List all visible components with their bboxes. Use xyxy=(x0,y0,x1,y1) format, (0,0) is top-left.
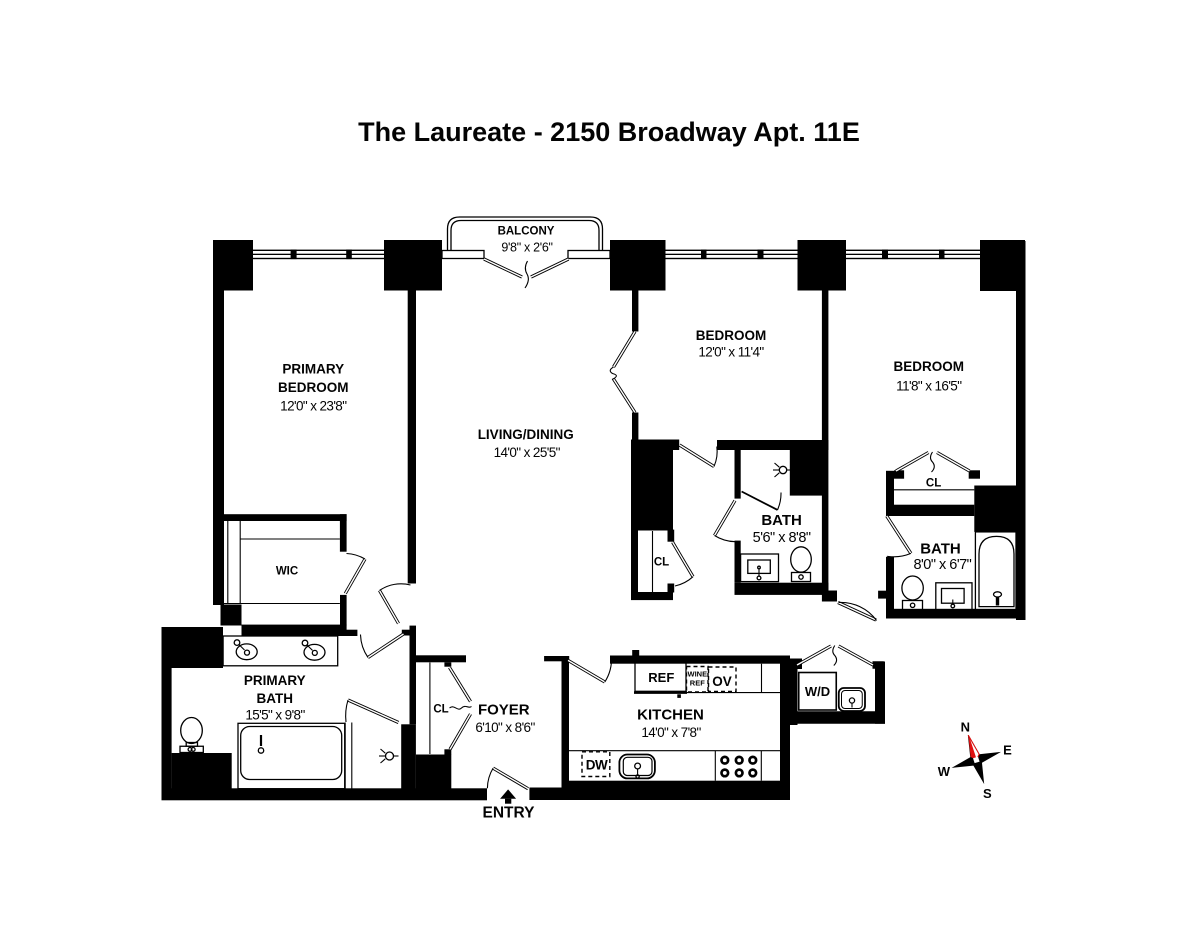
svg-text:CL: CL xyxy=(926,478,941,490)
svg-text:BALCONY: BALCONY xyxy=(498,226,555,238)
svg-text:12'0" x 23'8": 12'0" x 23'8" xyxy=(280,398,347,413)
svg-text:5'6" x 8'8": 5'6" x 8'8" xyxy=(753,530,811,546)
svg-text:14'0" x 25'5": 14'0" x 25'5" xyxy=(494,445,561,460)
svg-text:14'0" x 7'8": 14'0" x 7'8" xyxy=(641,725,701,740)
svg-text:11'8" x 16'5": 11'8" x 16'5" xyxy=(896,378,962,393)
svg-text:DW: DW xyxy=(586,758,608,773)
svg-text:LIVING/DINING: LIVING/DINING xyxy=(478,427,574,442)
svg-text:ENTRY: ENTRY xyxy=(483,805,536,822)
svg-text:The Laureate - 2150 Broadway A: The Laureate - 2150 Broadway Apt. 11E xyxy=(358,117,860,147)
svg-text:N: N xyxy=(961,719,970,734)
svg-text:6'10" x 8'6": 6'10" x 8'6" xyxy=(475,720,535,735)
svg-text:BATH: BATH xyxy=(257,691,294,706)
svg-text:PRIMARY: PRIMARY xyxy=(244,673,306,688)
svg-text:S: S xyxy=(983,786,992,801)
svg-text:W: W xyxy=(938,764,951,779)
svg-text:REF: REF xyxy=(648,670,674,685)
svg-text:BEDROOM: BEDROOM xyxy=(894,359,965,374)
svg-text:WINE: WINE xyxy=(688,669,708,678)
svg-text:15'5" x 9'8": 15'5" x 9'8" xyxy=(245,707,305,722)
svg-text:OV: OV xyxy=(712,674,732,689)
svg-text:PRIMARY: PRIMARY xyxy=(282,362,344,377)
svg-text:WIC: WIC xyxy=(276,566,298,578)
svg-text:BATH: BATH xyxy=(920,540,961,557)
svg-text:12'0" x 11'4": 12'0" x 11'4" xyxy=(698,345,764,360)
svg-text:KITCHEN: KITCHEN xyxy=(637,707,704,724)
svg-text:E: E xyxy=(1003,743,1012,758)
svg-text:FOYER: FOYER xyxy=(478,702,530,719)
svg-text:W/D: W/D xyxy=(805,684,830,699)
svg-text:BATH: BATH xyxy=(761,512,802,529)
svg-text:CL: CL xyxy=(433,704,448,716)
svg-text:BEDROOM: BEDROOM xyxy=(696,328,767,343)
svg-text:9'8" x 2'6": 9'8" x 2'6" xyxy=(501,241,552,255)
svg-text:8'0" x 6'7": 8'0" x 6'7" xyxy=(913,557,971,573)
svg-text:REF: REF xyxy=(690,678,705,687)
svg-text:CL: CL xyxy=(654,557,669,569)
svg-text:BEDROOM: BEDROOM xyxy=(278,380,349,395)
